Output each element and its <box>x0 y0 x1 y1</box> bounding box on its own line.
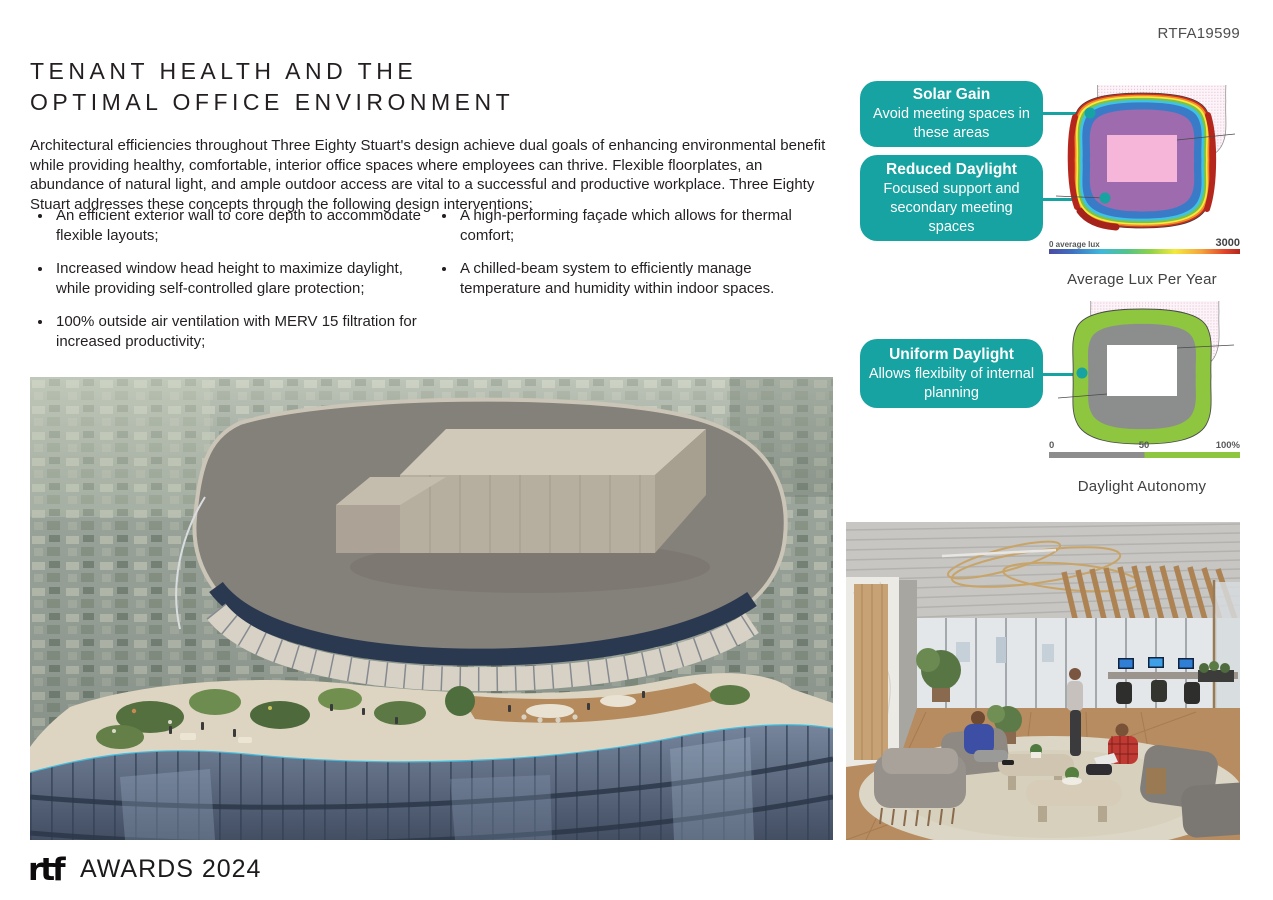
da-caption: Daylight Autonomy <box>1044 478 1240 495</box>
marker-dot-reduced <box>1100 193 1111 204</box>
reference-code: RTFA19599 <box>1158 25 1240 42</box>
bullet-column-right: A high-performing façade which allows fo… <box>437 206 819 312</box>
bullet-item: An efficient exterior wall to core depth… <box>53 206 425 245</box>
da-tick-0: 0 <box>1049 440 1054 451</box>
da-tick-50: 50 <box>1139 440 1150 451</box>
page-title-line1: TENANT HEALTH AND THE <box>30 56 514 87</box>
core-zone <box>1107 135 1177 182</box>
bullet-item: Increased window head height to maximize… <box>53 259 425 298</box>
da-tick-100: 100% <box>1216 440 1240 451</box>
marble-wall <box>846 577 899 767</box>
callout-title: Reduced Daylight <box>868 160 1035 180</box>
page-title: TENANT HEALTH AND THE OPTIMAL OFFICE ENV… <box>30 56 514 118</box>
callout-uniform-daylight: Uniform Daylight Allows flexibilty of in… <box>860 339 1043 408</box>
lux-scale-max: 3000 <box>1216 237 1240 249</box>
lux-heatmap-diagram <box>1044 85 1240 237</box>
daylight-autonomy-diagram <box>1044 301 1240 453</box>
awards-text: AWARDS 2024 <box>80 855 261 884</box>
callout-title: Uniform Daylight <box>868 345 1035 365</box>
svg-text:rtf: rtf <box>28 852 66 888</box>
callout-reduced-daylight: Reduced Daylight Focused support and sec… <box>860 155 1043 241</box>
bullet-item: A high-performing façade which allows fo… <box>457 206 819 245</box>
presentation-page: RTFA19599 TENANT HEALTH AND THE OPTIMAL … <box>0 0 1273 900</box>
lux-color-scale-bar <box>1049 249 1240 254</box>
building-aerial-render-image <box>30 377 833 840</box>
bullet-item: 100% outside air ventilation with MERV 1… <box>53 312 425 351</box>
bullet-item: A chilled-beam system to efficiently man… <box>457 259 819 298</box>
marker-dot-solar <box>1085 108 1096 119</box>
intro-paragraph: Architectural efficiencies throughout Th… <box>30 136 838 214</box>
interior-office-render-image <box>846 522 1240 840</box>
bullet-column-left: An efficient exterior wall to core depth… <box>33 206 425 365</box>
callout-title: Solar Gain <box>868 85 1035 105</box>
footer: rtf AWARDS 2024 <box>28 850 261 888</box>
core-zone <box>1107 345 1177 396</box>
lux-caption: Average Lux Per Year <box>1044 271 1240 288</box>
da-scale-labels: 0 50 100% <box>1049 440 1240 451</box>
callout-body: Avoid meeting spaces in these areas <box>868 105 1035 143</box>
callout-solar-gain: Solar Gain Avoid meeting spaces in these… <box>860 81 1043 147</box>
lux-scale-min: 0 average lux <box>1049 240 1100 249</box>
rtf-logo-icon: rtf <box>28 850 72 888</box>
da-scale-bar <box>1049 452 1240 458</box>
page-title-line2: OPTIMAL OFFICE ENVIRONMENT <box>30 87 514 118</box>
lux-scale-labels: 0 average lux 3000 <box>1049 237 1240 249</box>
marker-dot-uniform <box>1077 368 1088 379</box>
callout-body: Focused support and secondary meeting sp… <box>868 180 1035 237</box>
callout-body: Allows flexibilty of internal planning <box>868 365 1035 403</box>
